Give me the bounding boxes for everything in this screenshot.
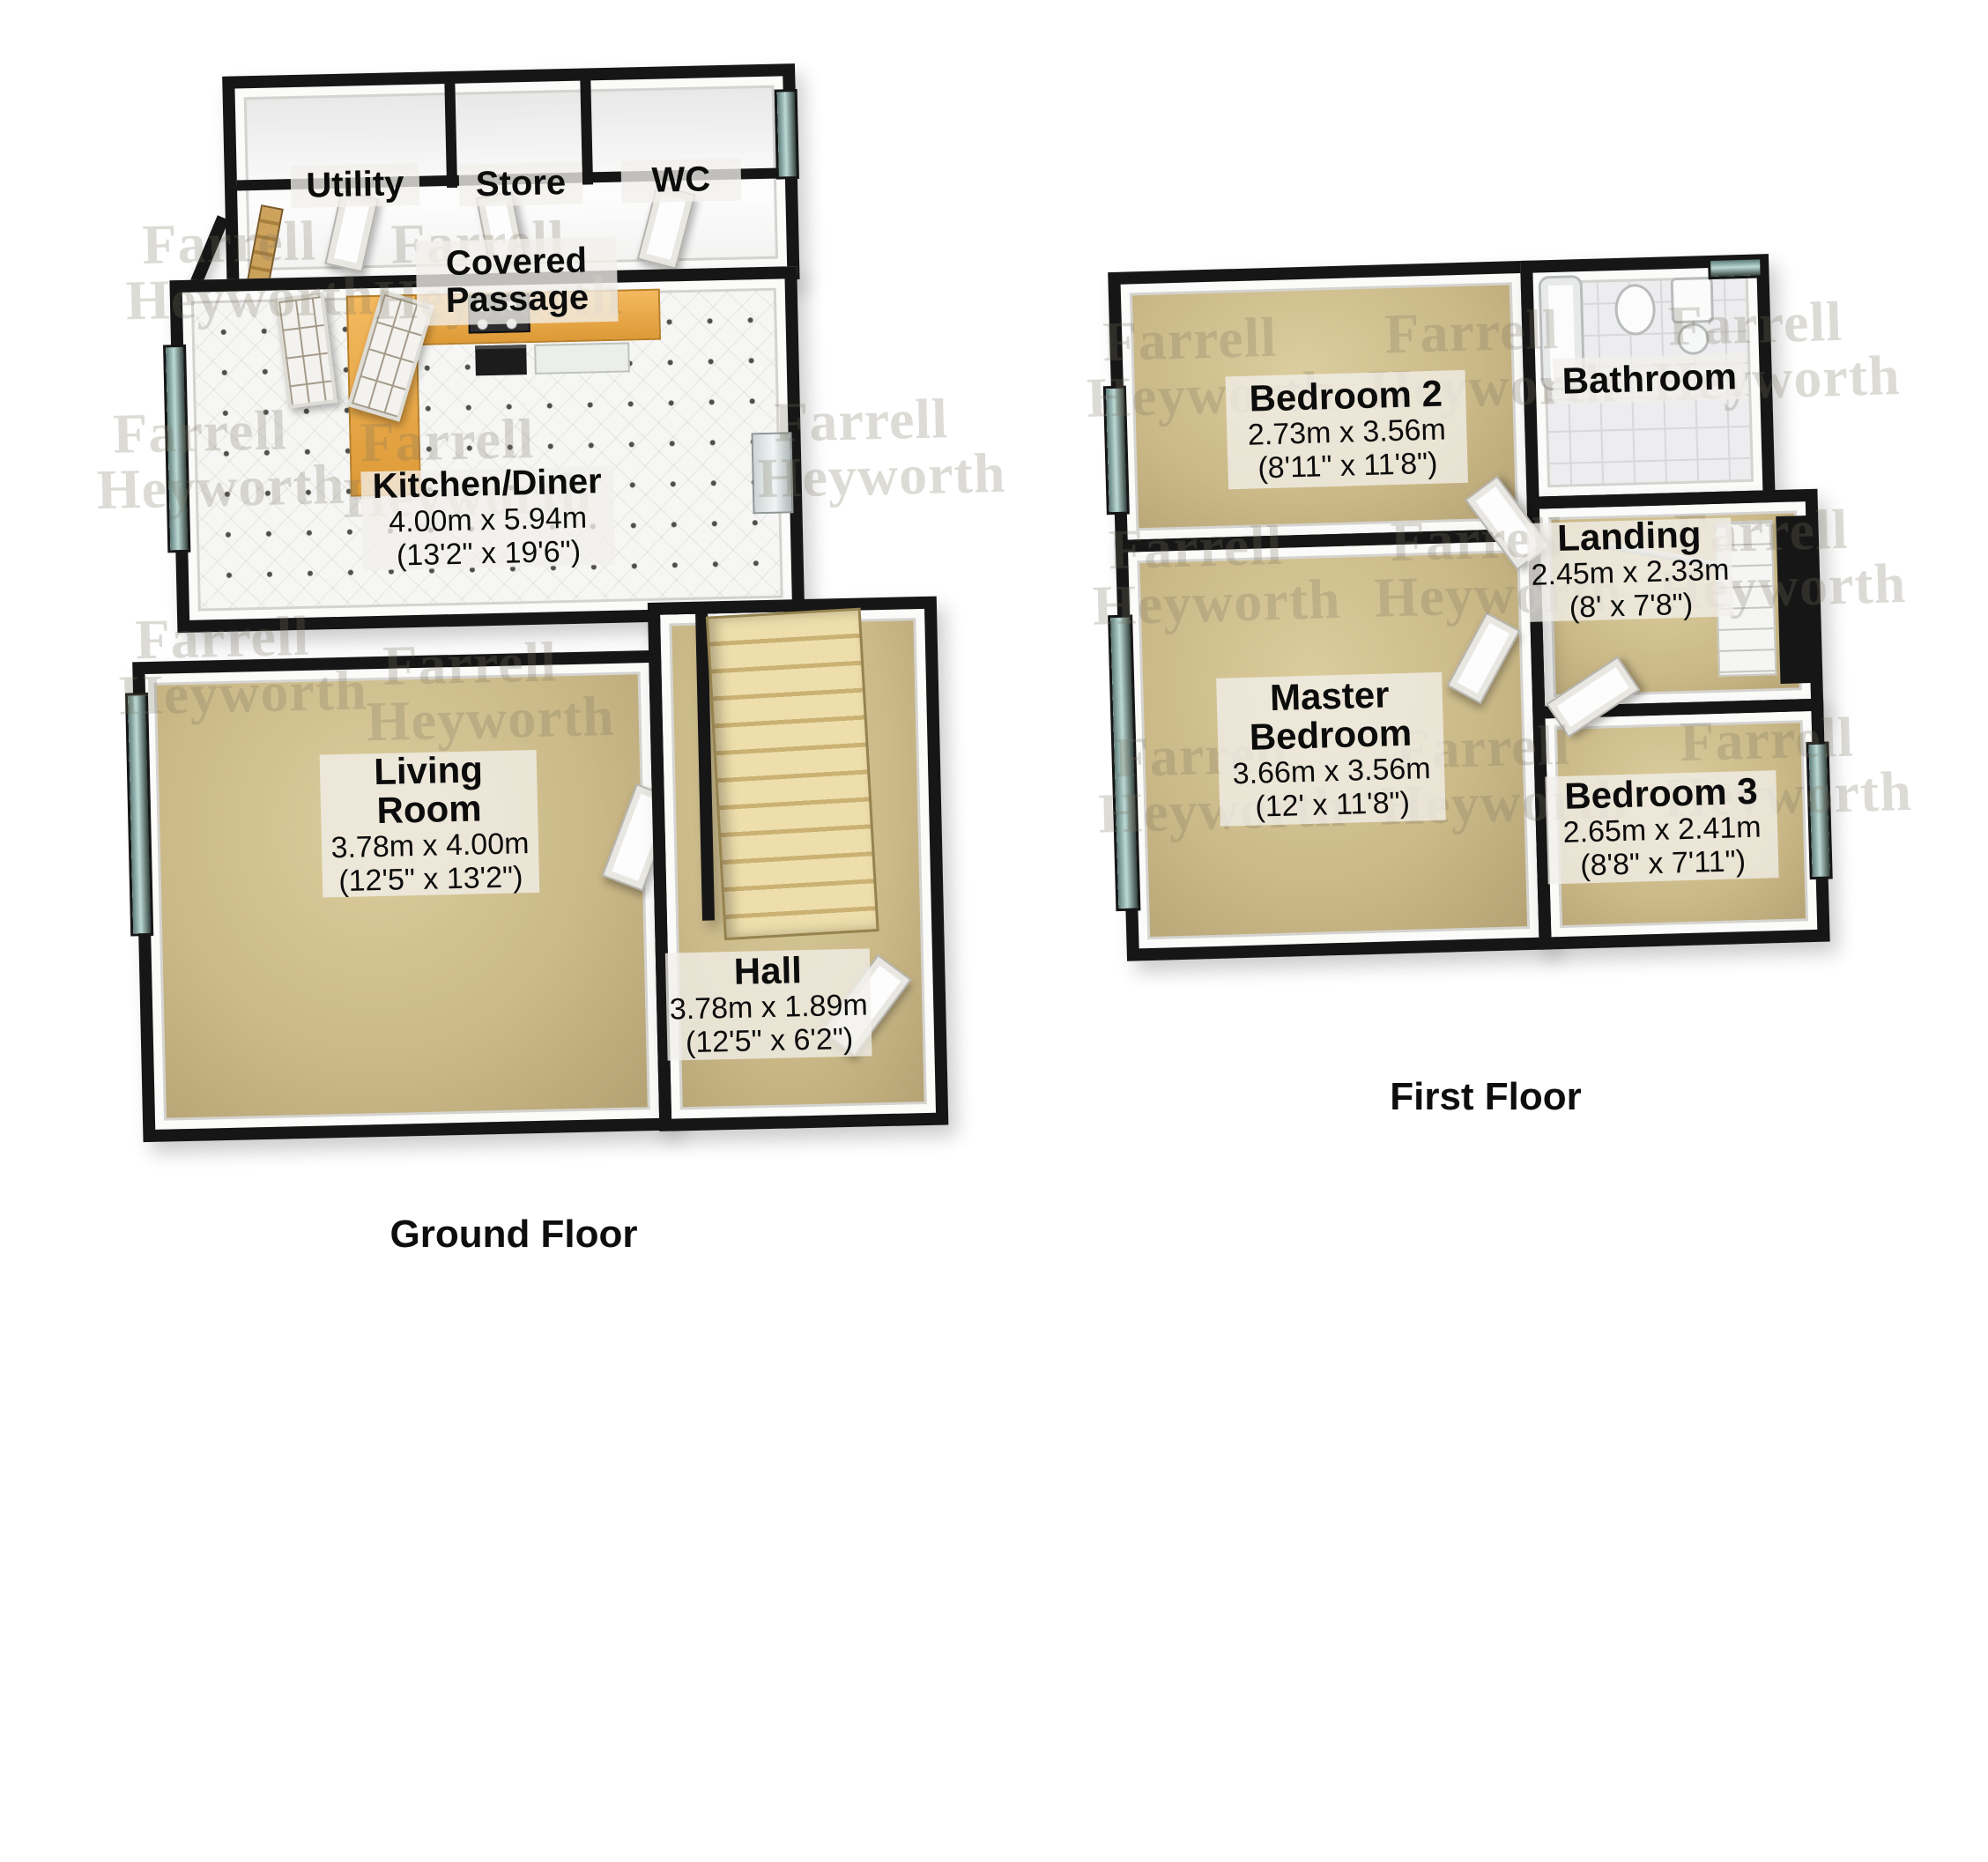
room-dim-imperial: (8'11" x 11'8") (1257, 447, 1438, 486)
first-floor-caption: First Floor (1371, 1075, 1600, 1119)
toilet-shape (1671, 277, 1714, 323)
room-name: Bedroom 3 (1564, 772, 1759, 816)
room-dim-metric: 2.65m x 2.41m (1562, 810, 1762, 849)
floorplan-canvas: FarrellHeyworth FarrellHeyworth FarrellH… (0, 0, 1988, 1862)
room-label-bathroom: Bathroom (1553, 353, 1746, 404)
room-name: Bedroom 2 (1249, 375, 1443, 419)
room-label-master-bedroom: Master Bedroom 3.66m x 3.56m (12' x 11'8… (1216, 672, 1446, 827)
room-dim-metric: 2.45m x 2.33m (1531, 553, 1730, 591)
window-glass-bedroom-3 (1808, 745, 1829, 877)
room-dim-metric: 2.73m x 3.56m (1247, 412, 1446, 451)
room-dim-imperial: (8' x 7'8") (1569, 588, 1693, 625)
room-name: Master Bedroom (1221, 674, 1438, 757)
room-dim-imperial: (12' x 11'8") (1255, 785, 1411, 823)
room-dim-imperial: (8'8" x 7'11") (1580, 844, 1747, 882)
window-glass-bedroom-2 (1106, 389, 1127, 513)
room-dim-metric: 3.66m x 3.56m (1232, 752, 1431, 790)
room-label-landing: Landing 2.45m x 2.33m (8' x 7'8") (1526, 517, 1733, 621)
room-name: Landing (1557, 516, 1702, 558)
room-label-bedroom-2: Bedroom 2 2.73m x 3.56m (8'11" x 11'8") (1226, 370, 1468, 490)
stairwell-void (1776, 516, 1812, 684)
first-floor-plan: FarrellHeyworth FarrellHeyworth FarrellH… (0, 0, 1988, 1862)
ground-floor-caption: Ground Floor (382, 1213, 646, 1257)
room-label-bedroom-3: Bedroom 3 2.65m x 2.41m (8'8" x 7'11") (1545, 770, 1778, 884)
room-name: Bathroom (1561, 357, 1737, 400)
window-glass-bathroom (1710, 259, 1760, 277)
